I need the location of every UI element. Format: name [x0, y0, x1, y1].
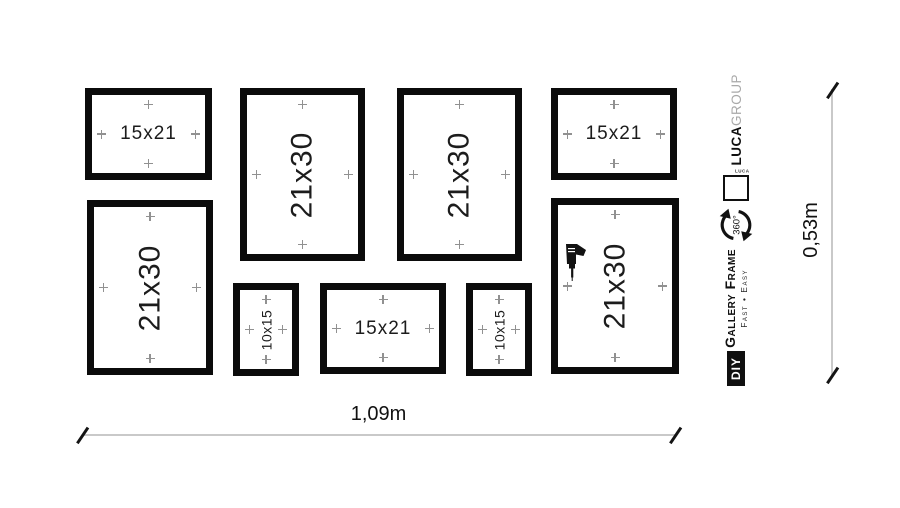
rotation-360-icon: 360° — [715, 204, 757, 246]
screw-marker-icon — [425, 324, 434, 333]
screw-marker-icon — [611, 353, 620, 362]
width-dimension-label: 1,09m — [82, 403, 675, 426]
frame-size-label: 10x15 — [491, 309, 507, 350]
screw-marker-icon — [610, 159, 619, 168]
picture-frame: 21x30 — [397, 88, 522, 261]
frame-size-label: 21x30 — [598, 243, 632, 330]
screw-marker-icon — [409, 170, 418, 179]
brand-name-light: GROUP — [729, 74, 744, 126]
picture-frame: 10x15 — [466, 283, 532, 376]
screw-marker-icon — [144, 100, 153, 109]
screw-marker-icon — [146, 212, 155, 221]
screw-marker-icon — [455, 100, 464, 109]
frame-size-label: 21x30 — [133, 244, 167, 331]
product-name-block: Gallery Frame Fast • Easy — [723, 249, 749, 348]
frame-size-label: 15x21 — [355, 318, 412, 340]
screw-marker-icon — [344, 170, 353, 179]
brand-logo-icon: LUCA — [723, 169, 749, 201]
screw-marker-icon — [656, 130, 665, 139]
screw-marker-icon — [658, 282, 667, 291]
screw-marker-icon — [191, 130, 200, 139]
width-dimension-line — [82, 434, 675, 436]
picture-frame: 21x30 — [87, 200, 213, 375]
screw-marker-icon — [262, 355, 271, 364]
picture-frame: 21x30 — [551, 198, 679, 374]
screw-marker-icon — [478, 325, 487, 334]
branding-column: DIY Gallery Frame Fast • Easy 360° LUCA … — [710, 74, 762, 386]
picture-frame: 15x21 — [320, 283, 446, 374]
screw-marker-icon — [262, 295, 271, 304]
screw-marker-icon — [455, 240, 464, 249]
frame-size-label: 21x30 — [286, 131, 320, 218]
frame-size-label: 15x21 — [586, 123, 643, 145]
screw-marker-icon — [501, 170, 510, 179]
screw-marker-icon — [611, 210, 620, 219]
screw-marker-icon — [298, 100, 307, 109]
picture-frame: 10x15 — [233, 283, 299, 376]
frame-size-label: 15x21 — [120, 123, 177, 145]
screw-marker-icon — [563, 130, 572, 139]
screw-marker-icon — [245, 325, 254, 334]
drill-icon — [562, 241, 590, 293]
svg-text:360°: 360° — [732, 215, 743, 235]
screw-marker-icon — [192, 283, 201, 292]
frame-size-label: 10x15 — [258, 309, 274, 350]
product-name: Gallery Frame — [723, 249, 738, 348]
screw-marker-icon — [379, 353, 388, 362]
height-dimension-line — [831, 89, 833, 375]
picture-frame: 15x21 — [85, 88, 212, 180]
height-dimension-label: 0,53m — [800, 180, 822, 280]
screw-marker-icon — [146, 354, 155, 363]
screw-marker-icon — [511, 325, 520, 334]
screw-marker-icon — [97, 130, 106, 139]
gallery-wall-layout-diagram: 15x21 21x30 21x30 15x21 21x30 10x15 — [0, 0, 900, 508]
screw-marker-icon — [298, 240, 307, 249]
brand-logo-microtext: LUCA — [735, 169, 750, 174]
brand-name-bold: LUCA — [729, 126, 744, 166]
product-tagline: Fast • Easy — [740, 249, 749, 348]
picture-frame: 15x21 — [551, 88, 677, 180]
picture-frame: 21x30 — [240, 88, 365, 261]
screw-marker-icon — [332, 324, 341, 333]
frame-size-label: 21x30 — [443, 131, 477, 218]
screw-marker-icon — [610, 100, 619, 109]
screw-marker-icon — [144, 159, 153, 168]
brand-name: LUCAGROUP — [729, 74, 744, 166]
brand-logo-square — [723, 175, 749, 201]
screw-marker-icon — [99, 283, 108, 292]
diy-badge: DIY — [727, 351, 745, 386]
screw-marker-icon — [278, 325, 287, 334]
screw-marker-icon — [495, 295, 504, 304]
screw-marker-icon — [252, 170, 261, 179]
screw-marker-icon — [495, 355, 504, 364]
screw-marker-icon — [379, 295, 388, 304]
